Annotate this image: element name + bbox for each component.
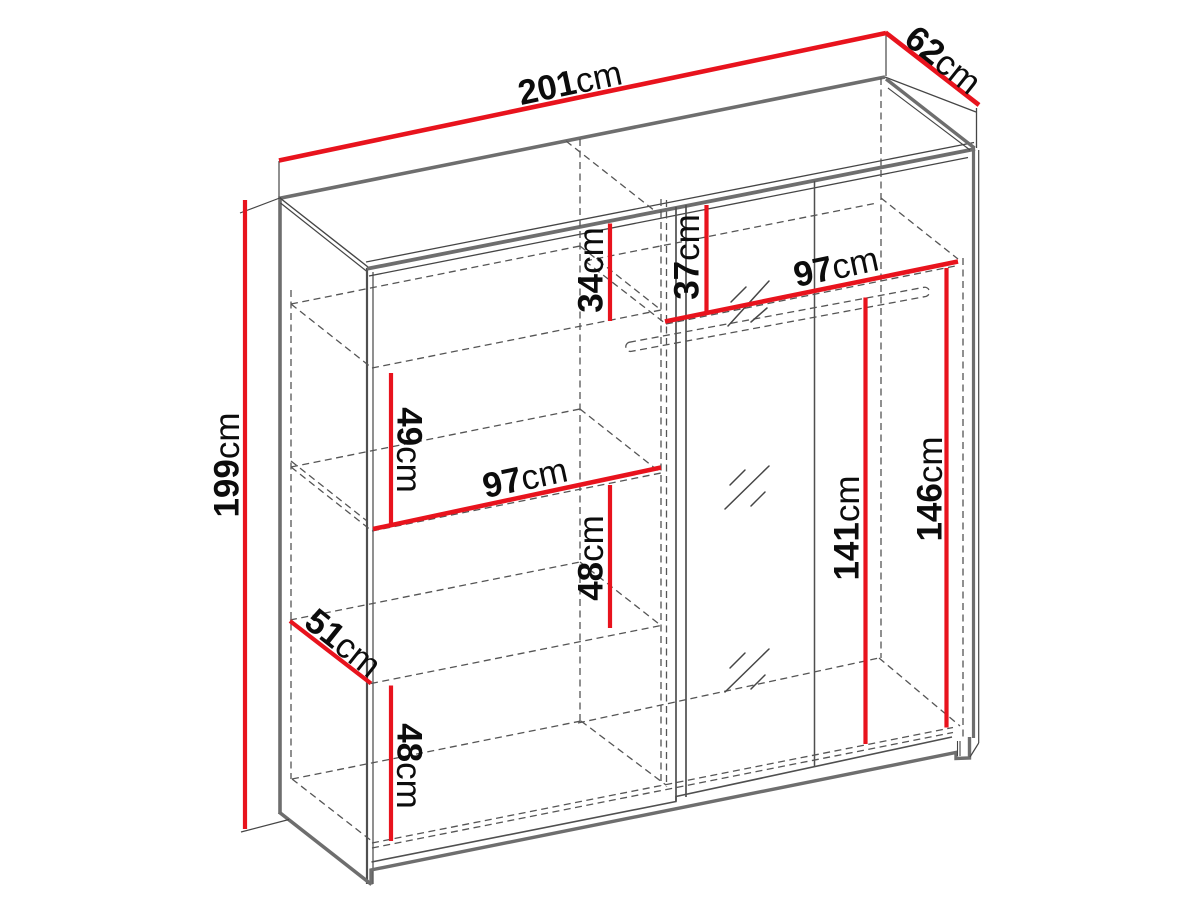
svg-text:141cm: 141cm [828,475,867,580]
svg-text:199cm: 199cm [208,412,247,517]
svg-text:146cm: 146cm [911,436,950,541]
svg-text:34cm: 34cm [572,227,611,313]
svg-text:48cm: 48cm [390,723,429,809]
svg-text:37cm: 37cm [668,214,707,300]
svg-text:48cm: 48cm [572,515,611,601]
svg-text:49cm: 49cm [390,407,429,493]
